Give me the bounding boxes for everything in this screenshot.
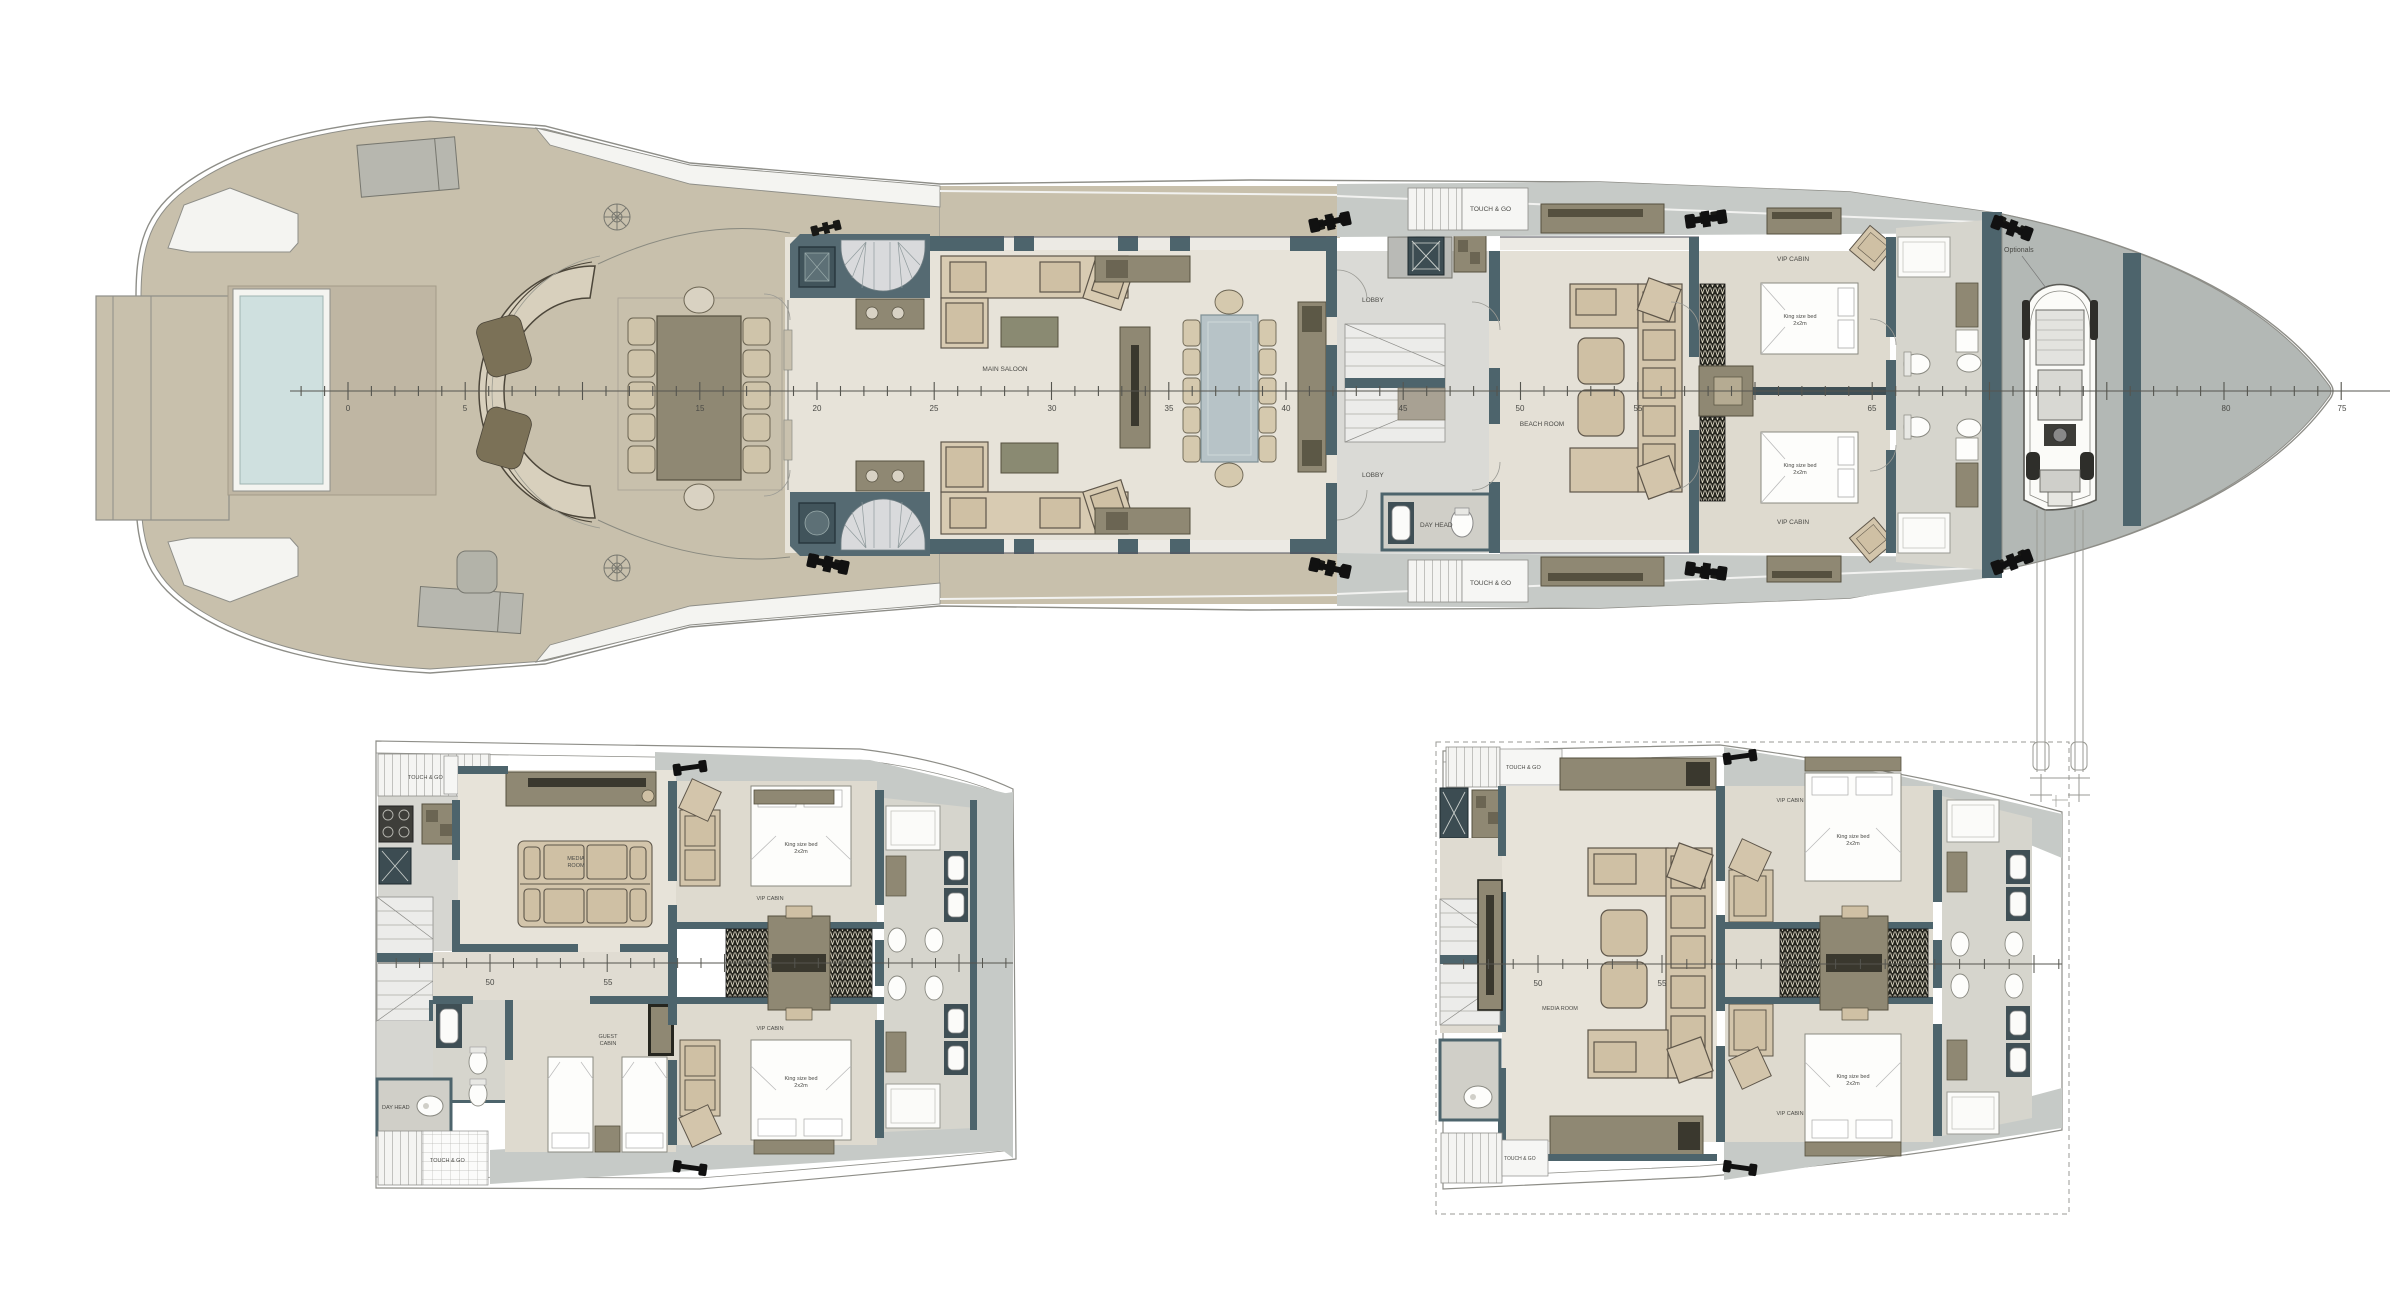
svg-text:VIP CABIN: VIP CABIN (1776, 798, 1803, 804)
svg-text:MEDIA ROOM: MEDIA ROOM (1542, 1006, 1578, 1012)
svg-text:55: 55 (1634, 404, 1643, 413)
svg-text:TOUCH & GO: TOUCH & GO (430, 1158, 465, 1164)
svg-text:80: 80 (2222, 404, 2231, 413)
svg-text:King size bed: King size bed (784, 1076, 817, 1082)
svg-text:VIP CABIN: VIP CABIN (756, 1026, 783, 1032)
svg-text:King size bed: King size bed (1783, 314, 1816, 320)
svg-text:20: 20 (813, 404, 822, 413)
svg-text:50: 50 (1516, 404, 1525, 413)
svg-text:55: 55 (604, 978, 613, 987)
svg-text:TOUCH & GO: TOUCH & GO (1504, 1156, 1536, 1162)
svg-text:VIP CABIN: VIP CABIN (756, 896, 783, 902)
svg-text:TOUCH & GO: TOUCH & GO (1506, 765, 1541, 771)
svg-text:0: 0 (346, 404, 351, 413)
svg-text:2x2m: 2x2m (1846, 841, 1860, 847)
svg-text:VIP CABIN: VIP CABIN (1776, 1111, 1803, 1117)
svg-text:LOBBY: LOBBY (1362, 472, 1384, 479)
svg-text:LOBBY: LOBBY (1362, 297, 1384, 304)
svg-text:GUEST: GUEST (599, 1034, 619, 1040)
svg-text:50: 50 (486, 978, 495, 987)
svg-text:CABIN: CABIN (600, 1041, 617, 1047)
svg-text:King size bed: King size bed (1836, 834, 1869, 840)
svg-text:BEACH ROOM: BEACH ROOM (1520, 421, 1564, 428)
svg-text:40: 40 (1282, 404, 1291, 413)
svg-text:50: 50 (1534, 979, 1543, 988)
svg-text:2x2m: 2x2m (794, 849, 808, 855)
svg-text:65: 65 (1868, 404, 1877, 413)
svg-text:King size bed: King size bed (784, 842, 817, 848)
svg-text:VIP CABIN: VIP CABIN (1777, 519, 1809, 526)
svg-text:30: 30 (1048, 404, 1057, 413)
svg-text:35: 35 (1165, 404, 1174, 413)
svg-text:2x2m: 2x2m (794, 1083, 808, 1089)
svg-text:55: 55 (1658, 979, 1667, 988)
svg-text:MEDIA: MEDIA (567, 856, 585, 862)
svg-text:King size bed: King size bed (1783, 463, 1816, 469)
svg-text:15: 15 (696, 404, 705, 413)
svg-text:DAY HEAD: DAY HEAD (382, 1105, 410, 1111)
svg-text:MAIN SALOON: MAIN SALOON (982, 366, 1027, 373)
svg-text:25: 25 (930, 404, 939, 413)
svg-text:VIP CABIN: VIP CABIN (1777, 256, 1809, 263)
svg-text:2x2m: 2x2m (1846, 1081, 1860, 1087)
svg-text:TOUCH & GO: TOUCH & GO (408, 775, 443, 781)
svg-text:2x2m: 2x2m (1793, 470, 1807, 476)
svg-text:DAY HEAD: DAY HEAD (1420, 522, 1453, 529)
svg-text:45: 45 (1399, 404, 1408, 413)
svg-text:75: 75 (2338, 404, 2347, 413)
svg-text:5: 5 (463, 404, 468, 413)
svg-text:Optionals: Optionals (2004, 247, 2034, 254)
svg-text:King size bed: King size bed (1836, 1074, 1869, 1080)
svg-text:TOUCH & GO: TOUCH & GO (1470, 206, 1511, 213)
svg-text:TOUCH & GO: TOUCH & GO (1470, 580, 1511, 587)
svg-text:2x2m: 2x2m (1793, 321, 1807, 327)
svg-text:ROOM: ROOM (567, 863, 585, 869)
